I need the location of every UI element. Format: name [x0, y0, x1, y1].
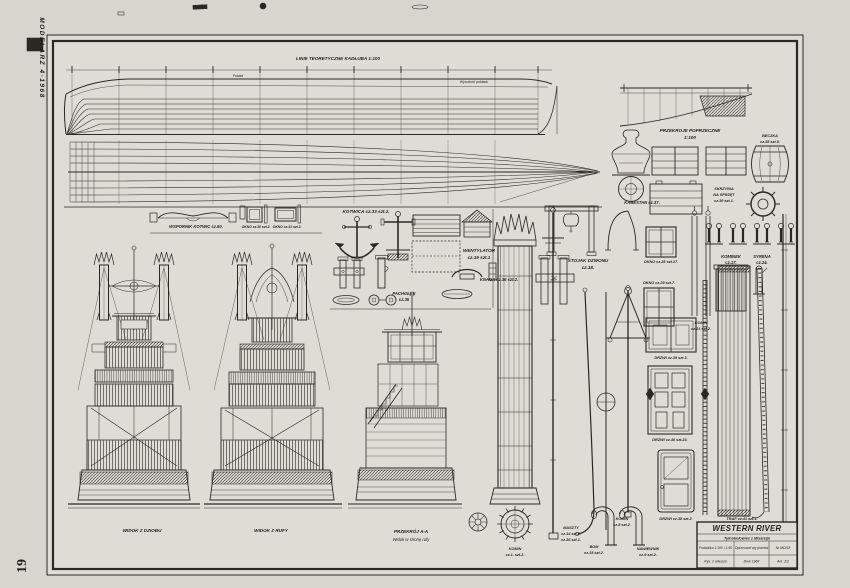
paper-sheet — [47, 35, 803, 575]
small-chimney-label: KOMINEK — [721, 254, 742, 259]
section-caption: PRZEKRÓJ A-A — [394, 528, 428, 534]
svg-text:NA SPRZĘT: NA SPRZĘT — [713, 193, 735, 197]
svg-text:cz.24.: cz.24. — [756, 260, 767, 265]
whistle-label: SYRENA — [753, 254, 770, 259]
svg-text:cz.8 szt.2.: cz.8 szt.2. — [613, 523, 631, 527]
deck-height-label: Wysokość pokładu — [460, 80, 488, 84]
capstan-label: KABESTAN cz.37. — [624, 200, 660, 205]
title-block: WESTERN RIVER Tylnokołowiec z Missisipi … — [697, 522, 797, 568]
svg-text:cz.35: cz.35 — [399, 297, 410, 302]
boom-label: BOM — [590, 545, 600, 549]
plan-drawing: MODELARZ 4·1968 19 LINIE TEORETYCZNE KAD… — [0, 0, 850, 588]
title-block-cell: Nr MD/18 — [776, 546, 791, 550]
ventilator-label: WENTYLATOR — [463, 248, 496, 253]
svg-text:cz.21 szt.2.: cz.21 szt.2. — [691, 327, 711, 331]
masts-label: MASZTY — [563, 526, 579, 530]
svg-text:cz.19 szt.1: cz.19 szt.1 — [468, 255, 491, 260]
barrel-label: BECZKA — [762, 134, 778, 138]
title-block-cell: Rys. 2 arkusze — [704, 560, 727, 564]
title-block-cell: Opracował wg planów — [735, 546, 769, 550]
door-40-label: DRZWI cz.40 szt.24. — [652, 438, 687, 442]
section-subcaption: Widok w stronę rufy — [393, 537, 431, 542]
window-30-label: OKNO cz.30 szt.2. — [242, 225, 271, 229]
cleat-label: KNAGA cz.36 szt.2. — [480, 277, 518, 282]
smokestack-label: KOMIN — [509, 547, 522, 551]
anchor-bracket-label: WSPORNIK KOTWIC cz.50. — [169, 224, 223, 229]
door-38-label: DRZWI cz.38 szt.2. — [659, 517, 692, 521]
svg-text:cz.38 szt.9.: cz.38 szt.9. — [760, 140, 780, 144]
bell-stand-label: STOJAK DZWONU — [568, 258, 609, 263]
sections-scale: 1:100 — [684, 135, 696, 140]
page-number: 19 — [15, 559, 30, 573]
title-block-cell: Druk 1968 — [744, 560, 760, 564]
title-block-cell: Ark. 2/2 — [776, 560, 789, 564]
svg-text:cz.17.: cz.17. — [725, 260, 736, 265]
model-name: WESTERN RIVER — [713, 524, 782, 533]
svg-text:cz.18.: cz.18. — [582, 265, 595, 270]
svg-text:cz.39 szt.1.: cz.39 szt.1. — [714, 199, 734, 203]
window-29-label: OKNO cz.29 szt.7. — [643, 281, 675, 285]
scan-marks — [118, 3, 428, 15]
window-28-label: OKNO cz.28 szt.17. — [644, 260, 678, 264]
window-31-label: OKNO cz.31 szt.2. — [273, 225, 302, 229]
model-subtitle: Tylnokołowiec z Missisipi — [724, 537, 771, 541]
title-block-cell: Podziałka 1:100 i 1:50 — [699, 546, 732, 550]
bitts-label: PACHOŁEK — [392, 291, 416, 296]
door-39-label: DRZWI cz.39 szt.3. — [654, 356, 687, 360]
stern-view-caption: WIDOK Z RUFY — [254, 528, 289, 533]
anchor-label: KOTWICA cz.33 szt.2. — [342, 209, 389, 214]
lines-plan-title: LINIE TEORETYCZNE KADŁUBA 1:100 — [296, 56, 381, 61]
bow-view-caption: WIDOK Z DZIOBU — [123, 528, 162, 533]
sections-title: PRZEKROJE POPRZECZNE — [660, 128, 722, 133]
svg-text:cz.16 szt.1.: cz.16 szt.1. — [561, 538, 581, 542]
gangway-label: TRAP cz.41 szt.1. — [726, 517, 757, 521]
svg-text:cz.1. szt.2.: cz.1. szt.2. — [506, 553, 525, 557]
svg-text:cz.9 szt.2.: cz.9 szt.2. — [639, 553, 657, 557]
magazine-label: MODELARZ 4·1968 — [38, 17, 45, 98]
cowl-vent-label: NAWIEWNIK — [637, 547, 660, 551]
svg-text:cz.15 szt.2.: cz.15 szt.2. — [584, 551, 604, 555]
equipment-box-label: SKRZYNIA — [714, 187, 734, 191]
funnel-8-label: KOMIN — [616, 517, 629, 521]
deck-label: Pokład — [233, 74, 243, 78]
scanned-plan-sheet: MODELARZ 4·1968 19 LINIE TEORETYCZNE KAD… — [0, 0, 850, 588]
